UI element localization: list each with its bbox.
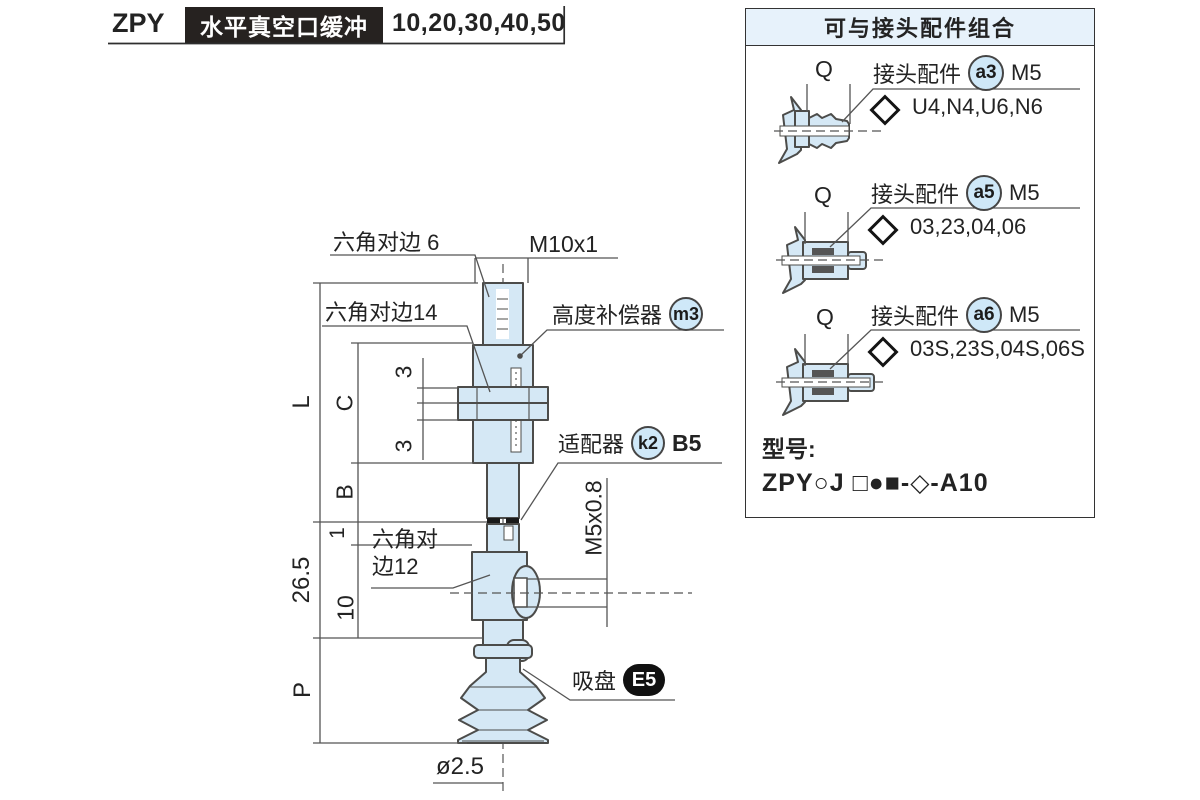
- adapter-body: [487, 524, 519, 552]
- fitting-a6-codes-row: 03S,23S,04S,06S: [870, 336, 1085, 363]
- dim-P: P: [289, 682, 317, 698]
- catalog-page: 水平真空口缓冲 ZPY 10,20,30,40,50 可与接头配件组合: [0, 0, 1200, 800]
- thread-relief: [496, 289, 509, 339]
- dim-1: 1: [326, 527, 350, 539]
- adapter-label: 适配器: [558, 427, 624, 459]
- diamond-icon: [869, 94, 900, 125]
- cup-badge: E5: [623, 664, 665, 696]
- fitting-thread: M5: [1009, 180, 1040, 206]
- fitting-a5-codes: 03,23,04,06: [910, 214, 1026, 240]
- dim-L: L: [288, 395, 316, 408]
- dim-10: 10: [333, 595, 360, 621]
- cup-flange: [474, 645, 532, 658]
- m10-thread-label: M10x1: [529, 231, 598, 258]
- compensator-label: 高度补偿器: [552, 298, 662, 330]
- fitting-a3-label-row: 接头配件 a3 M5: [873, 55, 1042, 91]
- suction-unit-drawing: [313, 255, 724, 792]
- fitting-a5-label-row: 接头配件 a5 M5: [871, 175, 1040, 211]
- fitting-a6-codes: 03S,23S,04S,06S: [910, 336, 1085, 362]
- fitting-label: 接头配件: [871, 177, 959, 209]
- compensator-label-row: 高度补偿器 m3: [552, 297, 703, 331]
- fitting-a6-badge: a6: [966, 297, 1002, 333]
- q-dim-a6: Q: [816, 304, 834, 331]
- fitting-label: 接头配件: [873, 57, 961, 89]
- hex12-label: 六角对 边12: [372, 526, 438, 580]
- fitting-thread: M5: [1009, 302, 1040, 328]
- header-rule: [108, 6, 565, 44]
- diameter-label: ø2.5: [436, 753, 484, 781]
- fitting-a5-badge: a5: [966, 175, 1002, 211]
- fitting-a5-codes-row: 03,23,04,06: [870, 214, 1026, 241]
- fitting-a3-codes-row: U4,N4,U6,N6: [872, 94, 1043, 121]
- diamond-icon: [867, 336, 898, 367]
- adapter-slot: [504, 526, 513, 540]
- fitting-a6-label-row: 接头配件 a6 M5: [871, 297, 1040, 333]
- q-dim-a5: Q: [814, 182, 832, 209]
- adapter-code: B5: [672, 430, 701, 457]
- fitting-thread: M5: [1011, 60, 1042, 86]
- dim-B: B: [332, 484, 359, 499]
- dim-3-top: 3: [391, 366, 418, 379]
- diamond-icon: [867, 214, 898, 245]
- hex6-label: 六角对边 6: [333, 225, 439, 257]
- adapter-label-row: 适配器 k2 B5: [558, 426, 701, 460]
- fitting-label: 接头配件: [871, 299, 959, 331]
- m5-thread-label: M5x0.8: [581, 480, 608, 555]
- compensator-badge: m3: [669, 297, 703, 331]
- dim-26-5: 26.5: [288, 557, 316, 604]
- hex-nut-upper: [458, 387, 548, 403]
- cup-label: 吸盘: [572, 664, 616, 696]
- q-dim-a3: Q: [815, 56, 833, 83]
- stem: [487, 463, 519, 518]
- hex14-label: 六角对边14: [325, 295, 437, 327]
- fitting-a3-codes: U4,N4,U6,N6: [912, 94, 1043, 120]
- hex-nut-lower: [458, 403, 548, 420]
- fitting-a3-badge: a3: [968, 55, 1004, 91]
- cup-label-row: 吸盘 E5: [572, 664, 665, 696]
- model-number: ZPY○J □●■-◇-A10: [762, 468, 989, 498]
- model-label: 型号:: [762, 430, 816, 464]
- leader-dot: [517, 353, 523, 359]
- dim-3-bottom: 3: [391, 440, 418, 453]
- dim-C: C: [332, 395, 359, 412]
- adapter-badge: k2: [631, 426, 665, 460]
